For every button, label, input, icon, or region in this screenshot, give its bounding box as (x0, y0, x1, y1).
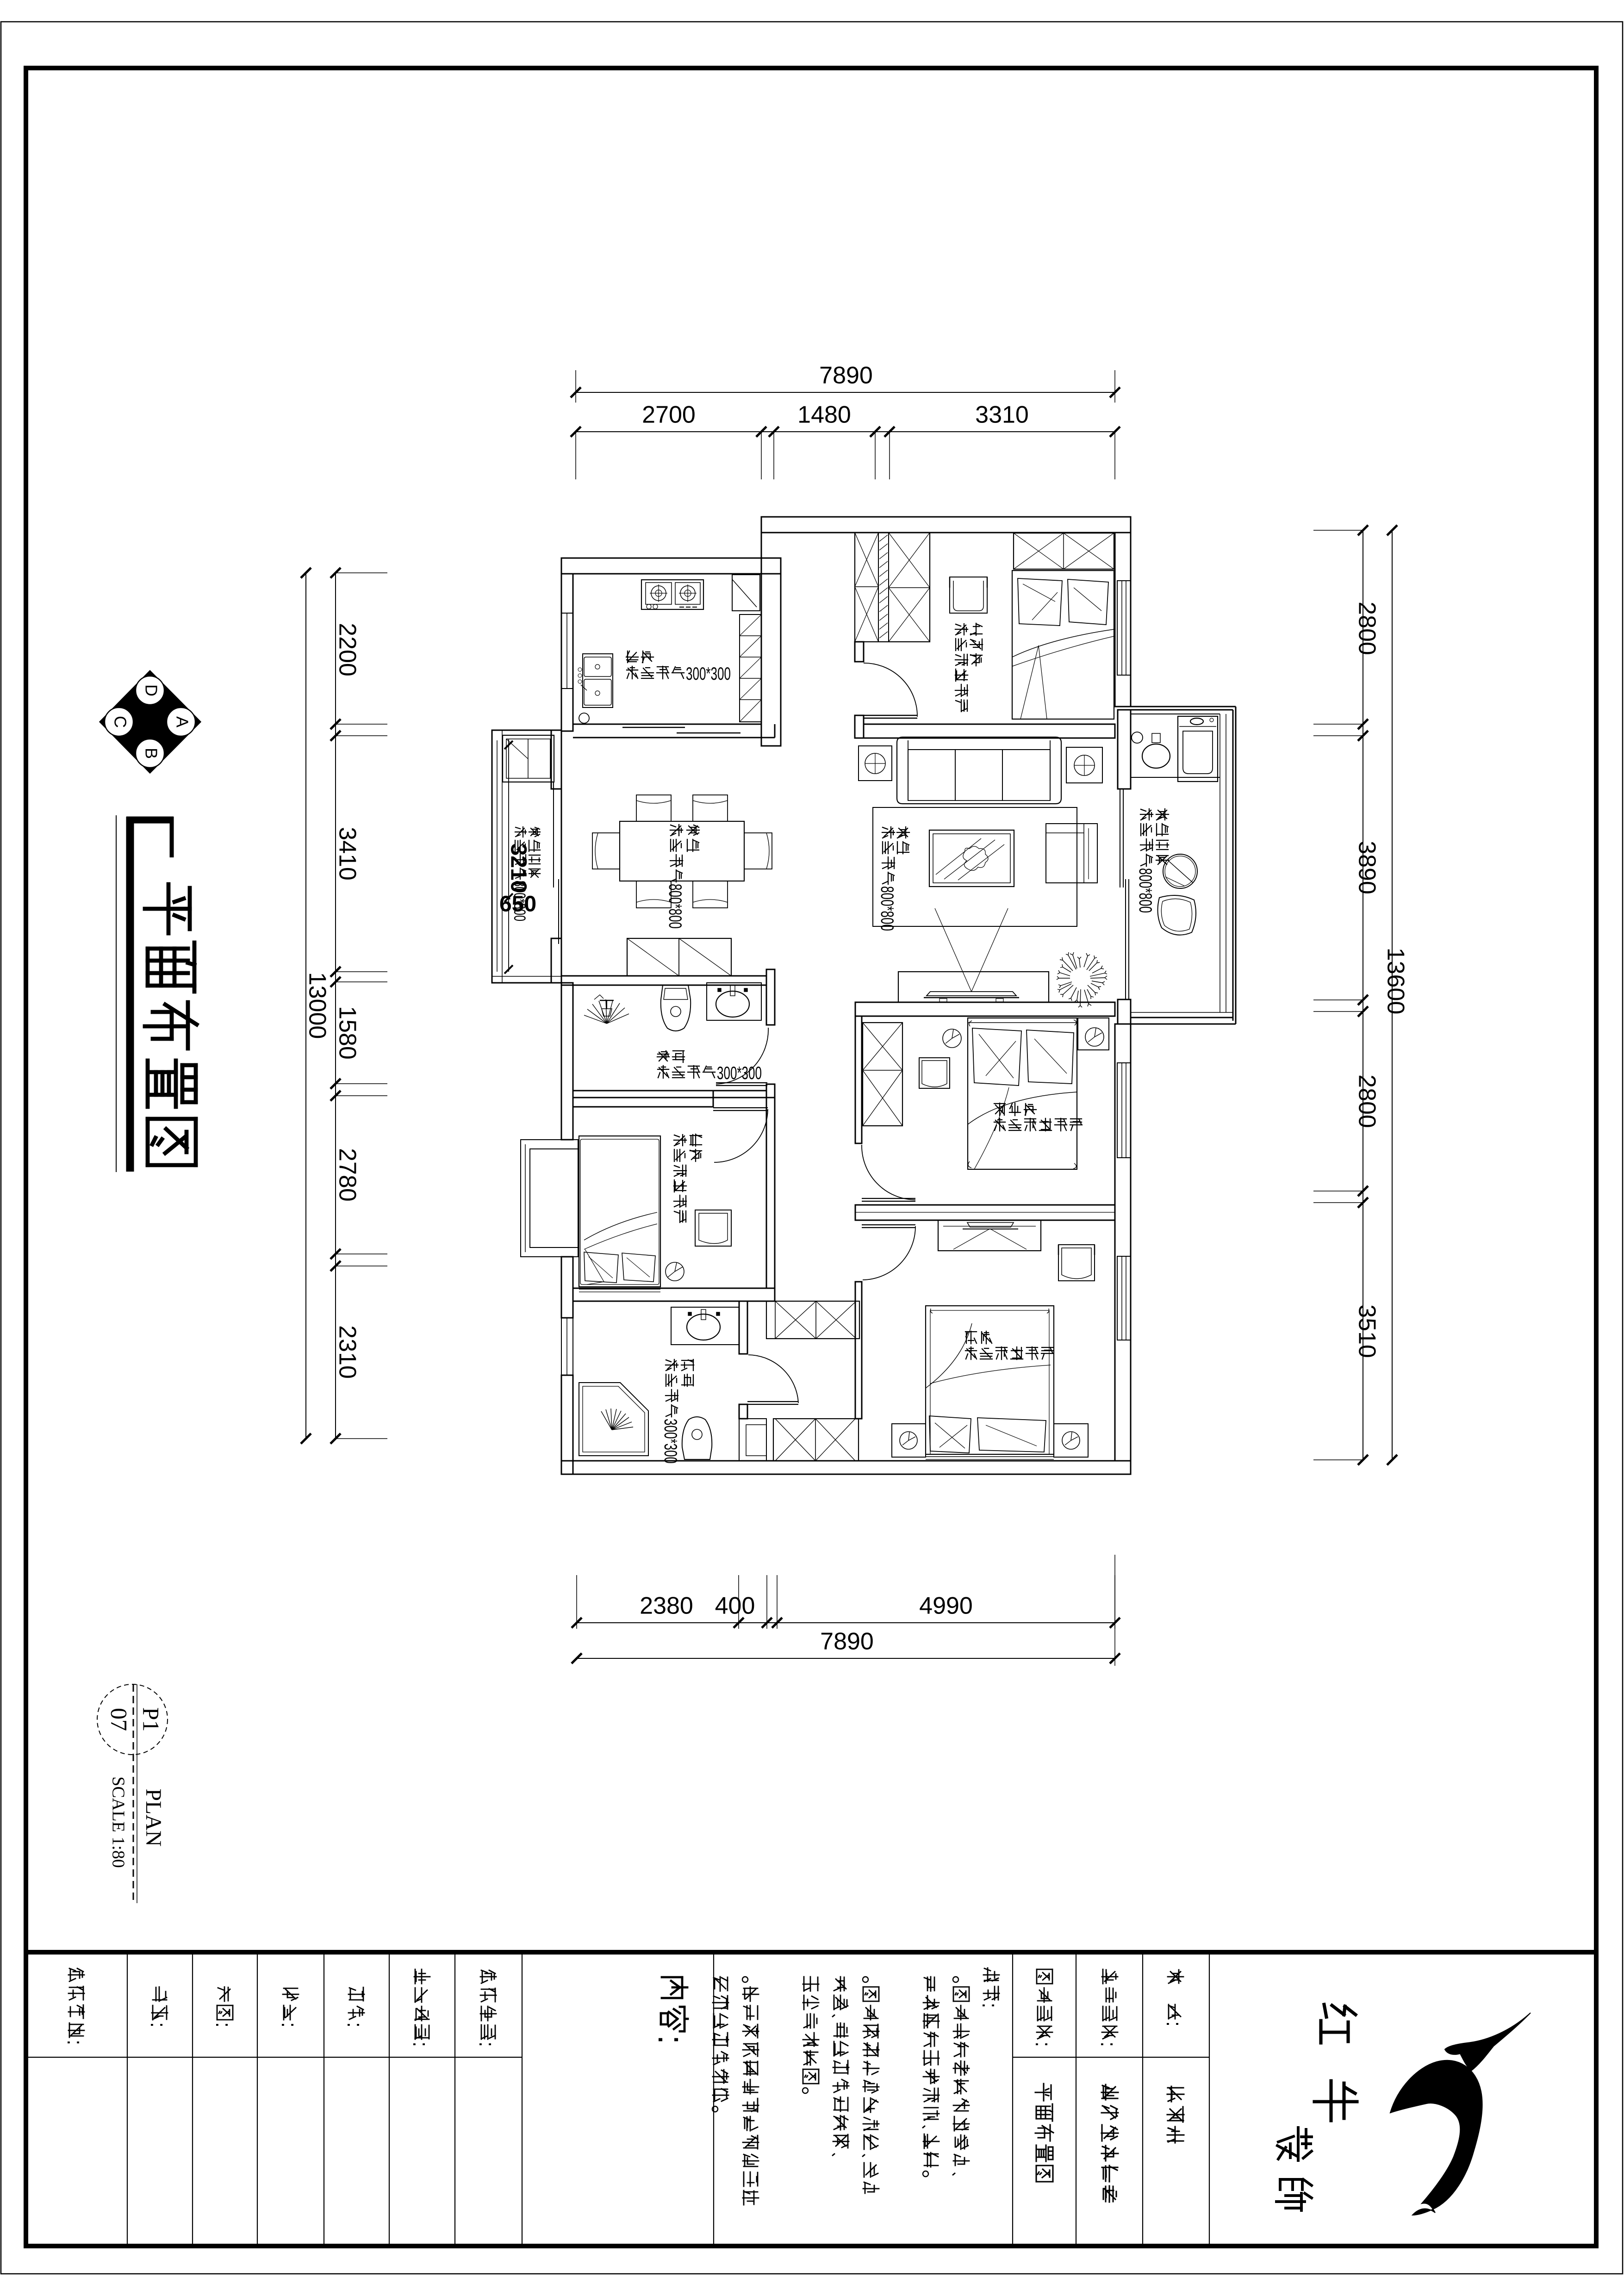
svg-text:07: 07 (106, 1708, 132, 1731)
svg-text:800*800: 800*800 (1135, 868, 1155, 913)
svg-text::: : (978, 2003, 1002, 2008)
svg-text:2310: 2310 (334, 1325, 361, 1379)
svg-text:3510: 3510 (1353, 1304, 1380, 1358)
svg-text::: : (1096, 2042, 1121, 2047)
svg-text::: : (277, 2022, 302, 2028)
svg-text:2780: 2780 (334, 1148, 361, 1202)
svg-text::: : (343, 2022, 367, 2028)
svg-text:650: 650 (499, 892, 536, 917)
svg-text::: : (1162, 2021, 1187, 2027)
svg-text::: : (212, 2022, 236, 2028)
svg-text:PLAN: PLAN (141, 1788, 166, 1846)
svg-text:A: A (173, 716, 192, 727)
svg-text::: : (409, 2042, 433, 2047)
svg-text:1480: 1480 (797, 402, 851, 428)
svg-text:P1: P1 (138, 1707, 164, 1732)
svg-text:2200: 2200 (334, 623, 361, 676)
svg-text:2380: 2380 (640, 1593, 693, 1620)
svg-text:3410: 3410 (334, 827, 361, 881)
svg-text:3210: 3210 (506, 844, 530, 893)
svg-text:7890: 7890 (820, 1628, 874, 1655)
svg-text:2800: 2800 (1353, 602, 1380, 655)
svg-text:300*300: 300*300 (686, 664, 731, 684)
svg-text:13600: 13600 (1382, 948, 1409, 1015)
svg-text:B: B (142, 748, 161, 759)
svg-text:1580: 1580 (334, 1006, 361, 1060)
svg-text:400: 400 (715, 1593, 755, 1620)
svg-text:3310: 3310 (975, 402, 1029, 428)
svg-text:SCALE 1:80: SCALE 1:80 (108, 1776, 128, 1868)
svg-text:C: C (111, 716, 130, 728)
svg-text:D: D (142, 684, 161, 696)
svg-text:7890: 7890 (819, 362, 873, 389)
svg-text:800*800: 800*800 (877, 886, 897, 931)
svg-text:13000: 13000 (304, 972, 330, 1039)
svg-text:800*800: 800*800 (665, 884, 685, 929)
svg-text::: : (475, 2042, 499, 2047)
svg-text:300*300: 300*300 (660, 1419, 680, 1464)
svg-text:2700: 2700 (642, 402, 696, 428)
svg-text::: : (651, 2035, 692, 2044)
svg-text::: : (1031, 2042, 1056, 2047)
svg-text:2800: 2800 (1353, 1074, 1380, 1128)
svg-text::: : (146, 2022, 171, 2028)
svg-text::: : (63, 2040, 87, 2045)
svg-text:3890: 3890 (1353, 841, 1380, 894)
svg-text:4990: 4990 (919, 1593, 973, 1620)
svg-text:300*300: 300*300 (717, 1063, 762, 1083)
